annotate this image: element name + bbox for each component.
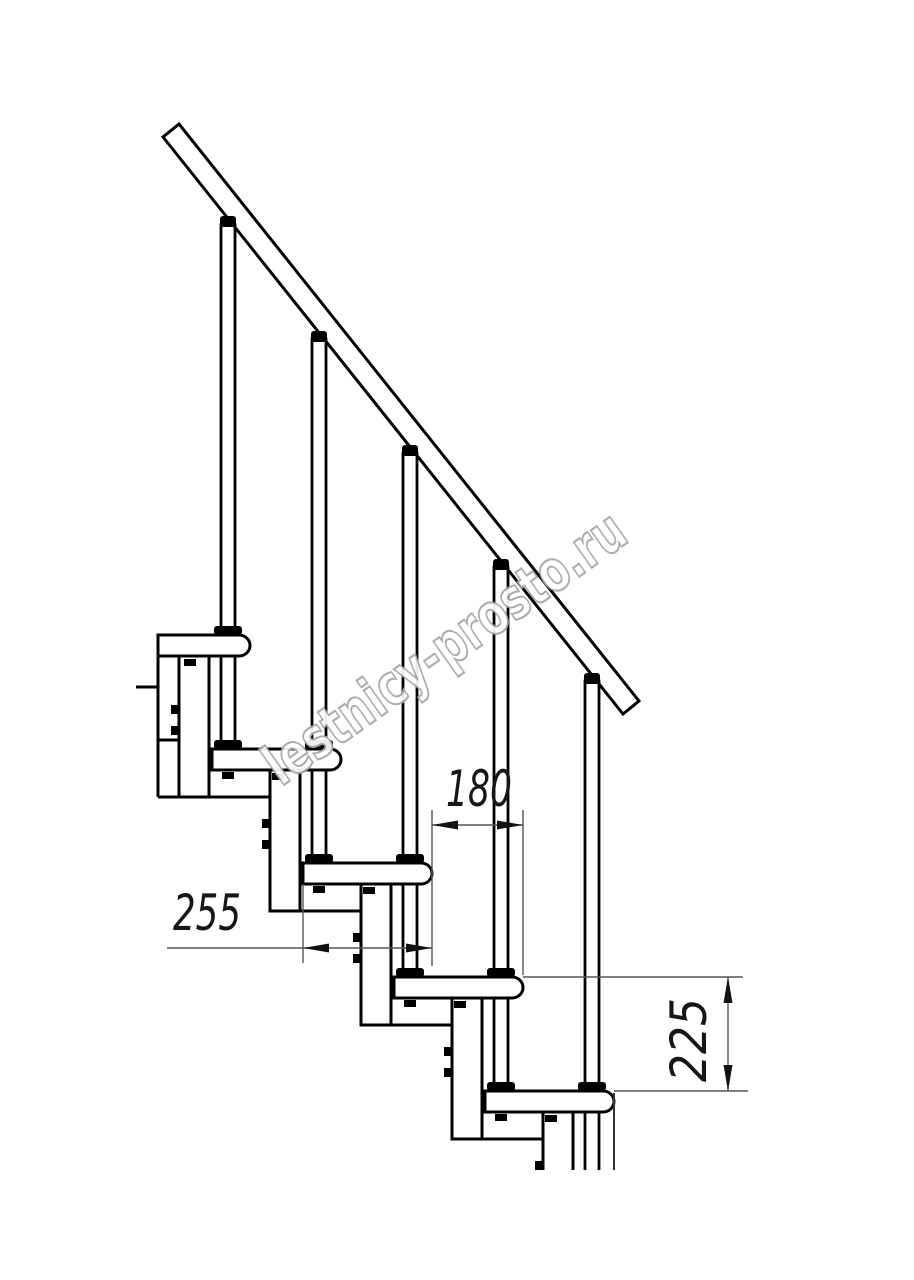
foot-collar xyxy=(487,968,515,977)
under-tread-nut xyxy=(545,1115,557,1122)
tread xyxy=(158,635,250,656)
under-tread-nut xyxy=(184,659,196,666)
bolt xyxy=(262,840,270,849)
foot-collar xyxy=(214,740,242,749)
module-flange xyxy=(158,770,270,797)
dimension-label-rise: 225 xyxy=(660,998,718,1082)
under-tread-nut xyxy=(222,772,234,779)
arrowhead-right xyxy=(406,944,432,953)
dimension-label-depth: 255 xyxy=(173,884,241,942)
dimension-label-run: 180 xyxy=(446,760,512,818)
bolt xyxy=(353,933,361,942)
under-tread-nut xyxy=(313,886,325,893)
arrowhead-left xyxy=(432,821,458,830)
tread xyxy=(485,1091,614,1112)
under-tread-nut xyxy=(454,1001,466,1008)
under-tread-nut xyxy=(404,1000,416,1007)
foot-collar xyxy=(214,626,242,635)
rail-collar xyxy=(311,331,327,342)
baluster xyxy=(585,681,599,1091)
tread-rod xyxy=(312,770,326,863)
tread-rod xyxy=(494,998,508,1091)
support-column xyxy=(452,998,482,1139)
bolt xyxy=(444,1068,452,1077)
staircase-drawing-page: 180 255 225 lestnicy-prosto.ru xyxy=(0,0,914,1280)
arrowhead-bottom xyxy=(724,1065,733,1091)
bolt xyxy=(353,954,361,963)
baluster xyxy=(312,339,326,749)
arrowhead-top xyxy=(724,977,733,1003)
under-tread-nut xyxy=(495,1114,507,1121)
rail-collar xyxy=(402,445,418,456)
foot-collar xyxy=(487,1082,515,1091)
foot-collar xyxy=(396,854,424,863)
foot-collar xyxy=(578,1082,606,1091)
bolt xyxy=(444,1047,452,1056)
foot-collar xyxy=(305,854,333,863)
baluster xyxy=(221,225,235,635)
tread-rod xyxy=(221,656,235,749)
arrowhead-left xyxy=(303,944,329,953)
foot-collar xyxy=(396,968,424,977)
tread-rod-cut xyxy=(585,1112,599,1170)
dimension-rise-225: 225 xyxy=(523,977,748,1170)
tread-rod xyxy=(403,884,417,977)
bolt xyxy=(262,819,270,828)
arrowhead-right xyxy=(497,821,523,830)
tread xyxy=(303,863,432,884)
bolt xyxy=(171,726,179,735)
bolt xyxy=(535,1161,543,1170)
rail-collar xyxy=(584,673,600,684)
rail-collar xyxy=(220,216,236,227)
bolt xyxy=(171,705,179,714)
tread xyxy=(394,977,523,998)
staircase-drawing: 180 255 225 lestnicy-prosto.ru xyxy=(0,0,914,1280)
under-tread-nut xyxy=(363,887,375,894)
support-column xyxy=(179,656,209,797)
support-column xyxy=(361,884,391,1025)
